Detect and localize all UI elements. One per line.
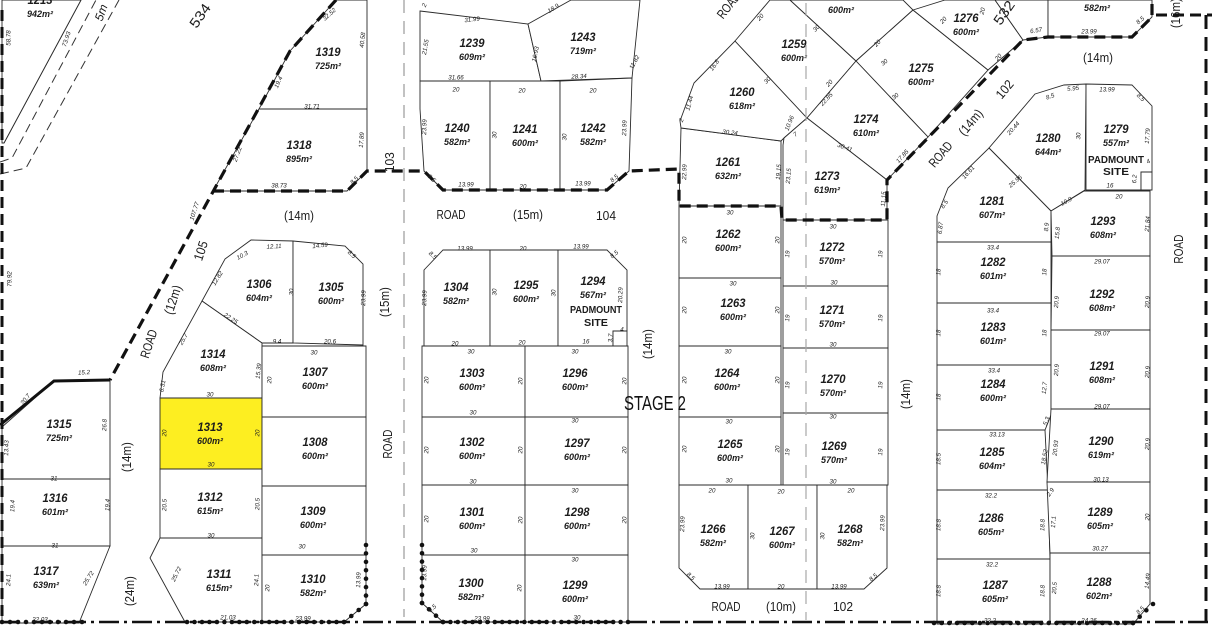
svg-text:582m²: 582m² [300, 588, 327, 598]
svg-text:615m²: 615m² [206, 583, 233, 593]
svg-text:(24m): (24m) [122, 576, 137, 606]
svg-text:20: 20 [423, 376, 430, 385]
svg-text:570m²: 570m² [821, 455, 848, 465]
svg-text:30: 30 [470, 409, 477, 416]
svg-text:30: 30 [831, 279, 838, 286]
svg-text:20.29: 20.29 [617, 287, 625, 304]
svg-text:600m²: 600m² [564, 452, 591, 462]
svg-text:32.2: 32.2 [985, 492, 998, 499]
svg-text:79.92: 79.92 [6, 271, 13, 287]
svg-text:38.73: 38.73 [271, 182, 287, 189]
svg-text:18: 18 [935, 268, 942, 276]
svg-text:1294: 1294 [581, 274, 606, 288]
svg-text:608m²: 608m² [1090, 230, 1117, 240]
svg-text:17.79: 17.79 [1144, 128, 1152, 144]
svg-text:(16m): (16m) [1168, 0, 1183, 28]
svg-text:STAGE 2: STAGE 2 [624, 393, 686, 415]
svg-text:12.7: 12.7 [1041, 381, 1049, 394]
svg-text:29.07: 29.07 [1093, 403, 1110, 410]
svg-text:600m²: 600m² [769, 540, 796, 550]
svg-text:725m²: 725m² [315, 61, 342, 71]
svg-text:1242: 1242 [581, 121, 606, 135]
svg-text:20: 20 [518, 339, 526, 346]
svg-text:18: 18 [1041, 268, 1048, 276]
svg-text:23.99: 23.99 [879, 515, 887, 532]
svg-text:600m²: 600m² [302, 381, 329, 391]
svg-text:23.99: 23.99 [679, 516, 687, 533]
svg-text:30: 30 [572, 487, 579, 494]
svg-text:20: 20 [774, 306, 781, 315]
svg-text:1303: 1303 [460, 366, 485, 380]
svg-text:30: 30 [830, 478, 837, 485]
svg-text:1299: 1299 [563, 578, 588, 592]
svg-text:1291: 1291 [1090, 359, 1115, 373]
svg-text:20.9: 20.9 [1053, 295, 1061, 309]
svg-text:600m²: 600m² [562, 594, 589, 604]
svg-text:20: 20 [621, 377, 628, 386]
svg-text:570m²: 570m² [820, 388, 847, 398]
svg-text:20.9: 20.9 [1144, 365, 1152, 379]
svg-text:13.99: 13.99 [1099, 86, 1115, 93]
svg-text:1314: 1314 [201, 347, 226, 361]
svg-text:1266: 1266 [701, 522, 726, 536]
svg-text:30: 30 [311, 349, 318, 356]
svg-text:600m²: 600m² [720, 312, 747, 322]
svg-text:20: 20 [621, 516, 628, 525]
svg-text:23.99: 23.99 [294, 615, 311, 622]
svg-text:PADMOUNT: PADMOUNT [1088, 155, 1144, 166]
svg-text:21.03: 21.03 [219, 614, 236, 621]
svg-text:1273: 1273 [815, 169, 840, 183]
svg-text:30: 30 [491, 288, 498, 295]
svg-text:13.99: 13.99 [355, 572, 363, 588]
svg-text:18.8: 18.8 [935, 518, 942, 531]
svg-text:30: 30 [470, 478, 477, 485]
svg-text:19: 19 [784, 448, 792, 456]
svg-text:23.99: 23.99 [1080, 28, 1097, 35]
svg-text:20.5: 20.5 [1051, 581, 1059, 595]
svg-text:20: 20 [517, 446, 524, 455]
svg-text:30: 30 [550, 289, 557, 296]
svg-text:20: 20 [516, 584, 523, 593]
svg-text:1267: 1267 [770, 524, 796, 538]
svg-text:20: 20 [681, 376, 688, 385]
svg-text:PADMOUNT: PADMOUNT [570, 305, 622, 316]
svg-text:1305: 1305 [319, 280, 344, 294]
svg-text:30: 30 [208, 461, 215, 468]
svg-text:1262: 1262 [716, 227, 741, 241]
svg-text:30.27: 30.27 [1092, 545, 1108, 552]
svg-text:23.15: 23.15 [785, 168, 793, 185]
svg-text:30: 30 [572, 417, 579, 424]
svg-text:1315: 1315 [47, 417, 72, 431]
svg-text:19: 19 [877, 448, 885, 456]
svg-text:725m²: 725m² [46, 433, 73, 443]
svg-text:30: 30 [574, 614, 581, 621]
svg-text:SITE: SITE [584, 318, 608, 329]
svg-text:600m²: 600m² [459, 521, 486, 531]
svg-text:ROAD: ROAD [380, 430, 395, 459]
svg-text:1311: 1311 [207, 567, 232, 581]
svg-text:600m²: 600m² [459, 451, 486, 461]
svg-text:29.07: 29.07 [1093, 258, 1110, 265]
svg-text:24.1: 24.1 [253, 574, 260, 587]
svg-text:30: 30 [561, 133, 568, 140]
svg-text:15.2: 15.2 [78, 369, 91, 377]
svg-text:20: 20 [519, 245, 527, 252]
svg-text:19: 19 [877, 314, 885, 322]
svg-text:1296: 1296 [563, 366, 588, 380]
svg-text:18: 18 [935, 393, 942, 401]
svg-text:18.5: 18.5 [935, 452, 942, 465]
svg-text:567m²: 567m² [580, 290, 607, 300]
svg-text:33.4: 33.4 [988, 367, 1001, 374]
svg-text:30: 30 [727, 209, 734, 216]
svg-text:1307: 1307 [303, 365, 329, 379]
svg-text:31: 31 [51, 475, 58, 482]
svg-text:1301: 1301 [460, 505, 485, 519]
svg-text:30: 30 [572, 556, 579, 563]
svg-text:17.1: 17.1 [1050, 516, 1058, 529]
svg-text:605m²: 605m² [978, 527, 1005, 537]
svg-text:1241: 1241 [513, 122, 538, 136]
svg-text:582m²: 582m² [700, 538, 727, 548]
svg-text:23.99: 23.99 [421, 290, 429, 307]
svg-text:1316: 1316 [43, 491, 68, 505]
svg-text:1272: 1272 [820, 240, 845, 254]
svg-text:582m²: 582m² [837, 538, 864, 548]
svg-text:20: 20 [589, 87, 597, 94]
svg-text:600m²: 600m² [318, 296, 345, 306]
svg-text:18.8: 18.8 [1039, 584, 1046, 597]
svg-text:1297: 1297 [565, 436, 591, 450]
svg-text:1302: 1302 [460, 435, 485, 449]
svg-text:600m²: 600m² [562, 382, 589, 392]
svg-text:11.15: 11.15 [880, 191, 888, 207]
svg-text:1270: 1270 [821, 372, 846, 386]
svg-text:1287: 1287 [983, 578, 1009, 592]
svg-text:33.4: 33.4 [987, 307, 1000, 314]
svg-text:601m²: 601m² [42, 507, 69, 517]
svg-text:20.9: 20.9 [1144, 295, 1152, 309]
svg-text:32.2: 32.2 [984, 617, 997, 624]
svg-text:13.43: 13.43 [3, 440, 11, 456]
svg-text:16: 16 [1107, 182, 1114, 189]
svg-text:102: 102 [833, 599, 853, 614]
svg-text:19: 19 [784, 381, 792, 389]
svg-text:30: 30 [830, 341, 837, 348]
svg-text:ROAD: ROAD [712, 599, 741, 614]
svg-text:(14m): (14m) [898, 379, 913, 409]
svg-text:618m²: 618m² [729, 101, 756, 111]
svg-text:20: 20 [519, 183, 527, 190]
svg-text:632m²: 632m² [715, 171, 742, 181]
svg-text:13.99: 13.99 [573, 243, 589, 250]
svg-text:20.5: 20.5 [254, 497, 261, 511]
svg-text:33.4: 33.4 [987, 244, 1000, 251]
svg-text:30: 30 [299, 543, 306, 550]
svg-text:610m²: 610m² [853, 128, 880, 138]
svg-text:582m²: 582m² [1084, 3, 1111, 13]
svg-text:942m²: 942m² [27, 9, 54, 19]
svg-text:(14m): (14m) [284, 208, 314, 223]
svg-text:1264: 1264 [715, 366, 740, 380]
svg-text:15.8: 15.8 [1054, 226, 1062, 239]
svg-text:19.15: 19.15 [775, 164, 783, 180]
svg-text:(14m): (14m) [640, 329, 655, 359]
svg-text:1319: 1319 [316, 45, 341, 59]
svg-text:1240: 1240 [445, 121, 470, 135]
svg-text:1265: 1265 [718, 437, 743, 451]
svg-text:600m²: 600m² [714, 382, 741, 392]
svg-text:20: 20 [451, 340, 459, 347]
svg-text:601m²: 601m² [980, 271, 1007, 281]
svg-text:1300: 1300 [459, 576, 484, 590]
svg-text:30: 30 [830, 413, 837, 420]
svg-text:13.99: 13.99 [714, 583, 730, 590]
svg-text:13.99: 13.99 [457, 245, 473, 252]
svg-text:1306: 1306 [247, 277, 272, 291]
svg-text:20: 20 [774, 236, 781, 245]
svg-text:1304: 1304 [444, 280, 469, 294]
svg-text:ROAD: ROAD [437, 207, 466, 222]
svg-text:1292: 1292 [1090, 287, 1115, 301]
svg-text:9.4: 9.4 [273, 338, 282, 345]
svg-text:1295: 1295 [514, 278, 539, 292]
svg-text:SITE: SITE [1103, 167, 1129, 178]
svg-text:600m²: 600m² [717, 453, 744, 463]
svg-text:30: 30 [819, 532, 826, 540]
svg-text:17.89: 17.89 [358, 132, 366, 148]
svg-text:20: 20 [681, 306, 688, 315]
svg-text:600m²: 600m² [564, 521, 591, 531]
svg-text:20: 20 [264, 584, 271, 593]
svg-text:1276: 1276 [954, 11, 979, 25]
svg-text:20: 20 [708, 487, 716, 494]
svg-text:30: 30 [471, 547, 478, 554]
svg-text:30: 30 [207, 391, 214, 398]
svg-text:1310: 1310 [301, 572, 326, 586]
svg-text:600m²: 600m² [300, 520, 327, 530]
svg-text:1239: 1239 [460, 36, 485, 50]
svg-text:1282: 1282 [981, 255, 1006, 269]
svg-text:557m²: 557m² [1103, 138, 1130, 148]
svg-text:20: 20 [423, 446, 430, 455]
svg-text:1213: 1213 [28, 0, 53, 7]
svg-text:1290: 1290 [1089, 434, 1114, 448]
svg-text:1298: 1298 [565, 505, 590, 519]
svg-text:20: 20 [161, 429, 168, 438]
svg-text:615m²: 615m² [197, 506, 224, 516]
svg-text:20.9: 20.9 [1144, 437, 1152, 451]
svg-text:5.95: 5.95 [1067, 85, 1080, 93]
svg-text:1261: 1261 [716, 155, 741, 169]
svg-text:607m²: 607m² [979, 210, 1006, 220]
svg-text:1243: 1243 [571, 30, 596, 44]
svg-text:20: 20 [621, 446, 628, 455]
svg-text:8.9: 8.9 [1043, 222, 1051, 232]
svg-text:30: 30 [208, 532, 215, 539]
svg-text:32.2: 32.2 [986, 561, 999, 568]
svg-text:604m²: 604m² [246, 293, 273, 303]
svg-text:18.8: 18.8 [935, 584, 942, 597]
svg-text:1284: 1284 [981, 377, 1006, 391]
svg-text:601m²: 601m² [980, 336, 1007, 346]
svg-text:ROAD: ROAD [1171, 235, 1186, 264]
svg-text:20: 20 [774, 445, 781, 454]
svg-text:600m²: 600m² [459, 382, 486, 392]
svg-text:20: 20 [777, 583, 785, 590]
svg-text:600m²: 600m² [715, 243, 742, 253]
svg-text:1283: 1283 [981, 320, 1006, 334]
svg-text:582m²: 582m² [443, 296, 470, 306]
svg-text:13.99: 13.99 [831, 583, 847, 590]
svg-text:1285: 1285 [980, 445, 1005, 459]
svg-text:(14m): (14m) [1083, 50, 1113, 65]
svg-text:30: 30 [468, 348, 475, 355]
svg-text:30: 30 [288, 288, 295, 296]
svg-text:570m²: 570m² [819, 256, 846, 266]
svg-text:24.26: 24.26 [1080, 617, 1097, 624]
svg-text:1313: 1313 [198, 420, 223, 434]
svg-text:30: 30 [830, 223, 837, 230]
svg-text:1312: 1312 [198, 490, 223, 504]
svg-text:20.9: 20.9 [1053, 363, 1061, 377]
svg-text:600m²: 600m² [302, 451, 329, 461]
svg-text:1286: 1286 [979, 511, 1004, 525]
svg-text:26.8: 26.8 [101, 418, 108, 432]
svg-text:600m²: 600m² [828, 5, 855, 15]
svg-text:1259: 1259 [782, 37, 807, 51]
svg-text:1271: 1271 [820, 303, 845, 317]
svg-text:1289: 1289 [1088, 505, 1113, 519]
svg-text:602m²: 602m² [1086, 591, 1113, 601]
svg-text:(15m): (15m) [377, 287, 392, 317]
svg-text:20: 20 [681, 445, 688, 454]
svg-text:20: 20 [452, 86, 460, 93]
svg-text:1281: 1281 [980, 194, 1005, 208]
svg-text:30: 30 [730, 280, 737, 287]
svg-text:1269: 1269 [822, 439, 847, 453]
svg-text:1288: 1288 [1087, 575, 1112, 589]
svg-text:604m²: 604m² [979, 461, 1006, 471]
svg-text:22.03: 22.03 [31, 616, 48, 623]
svg-text:58.78: 58.78 [5, 30, 12, 46]
svg-text:20: 20 [423, 515, 430, 524]
svg-text:29.07: 29.07 [1093, 330, 1110, 337]
svg-text:19.4: 19.4 [9, 499, 16, 512]
svg-text:3.7: 3.7 [607, 333, 615, 343]
svg-text:1268: 1268 [838, 522, 863, 536]
svg-text:6.2: 6.2 [1131, 174, 1139, 184]
svg-text:608m²: 608m² [1089, 375, 1116, 385]
svg-text:20: 20 [777, 488, 785, 495]
svg-text:31: 31 [52, 542, 59, 549]
svg-text:104: 104 [596, 208, 616, 223]
svg-text:582m²: 582m² [458, 592, 485, 602]
svg-text:24.1: 24.1 [5, 574, 12, 587]
svg-text:30: 30 [572, 348, 579, 355]
svg-text:1275: 1275 [909, 61, 934, 75]
svg-text:582m²: 582m² [444, 137, 471, 147]
svg-text:6.87: 6.87 [937, 221, 945, 234]
svg-text:18.8: 18.8 [1039, 518, 1046, 531]
svg-text:570m²: 570m² [819, 319, 846, 329]
svg-text:1274: 1274 [854, 112, 879, 126]
svg-text:20: 20 [517, 516, 524, 525]
svg-text:1280: 1280 [1036, 131, 1061, 145]
svg-text:12.11: 12.11 [266, 243, 281, 251]
svg-text:31.66: 31.66 [448, 74, 464, 81]
svg-text:31.71: 31.71 [304, 103, 319, 110]
svg-text:28.34: 28.34 [570, 73, 587, 81]
svg-text:619m²: 619m² [814, 185, 841, 195]
svg-text:20: 20 [254, 429, 261, 438]
svg-text:23.99: 23.99 [360, 290, 368, 307]
svg-text:30: 30 [1075, 132, 1082, 140]
svg-text:1263: 1263 [721, 296, 746, 310]
svg-text:19: 19 [784, 250, 792, 258]
svg-text:30: 30 [726, 418, 733, 425]
svg-text:20: 20 [266, 376, 273, 385]
svg-text:18: 18 [1041, 329, 1048, 337]
svg-text:20: 20 [774, 376, 781, 385]
svg-text:719m²: 719m² [570, 46, 597, 56]
svg-text:608m²: 608m² [1089, 303, 1116, 313]
svg-text:13.99: 13.99 [421, 565, 429, 581]
svg-text:20.6: 20.6 [323, 338, 337, 345]
svg-text:20: 20 [847, 487, 855, 494]
svg-text:18: 18 [935, 329, 942, 337]
svg-text:619m²: 619m² [1088, 450, 1115, 460]
svg-text:20.5: 20.5 [161, 498, 168, 512]
svg-text:20: 20 [681, 236, 688, 245]
svg-text:608m²: 608m² [200, 363, 227, 373]
svg-text:22.99: 22.99 [681, 164, 689, 181]
svg-text:20: 20 [517, 377, 524, 386]
svg-text:(14m): (14m) [119, 442, 134, 472]
svg-text:13.99: 13.99 [458, 181, 474, 188]
svg-text:20: 20 [518, 87, 526, 94]
svg-text:(10m): (10m) [766, 599, 796, 614]
svg-text:13.99: 13.99 [575, 180, 591, 187]
svg-text:1308: 1308 [303, 435, 328, 449]
svg-text:4: 4 [620, 326, 624, 333]
svg-text:605m²: 605m² [1087, 521, 1114, 531]
svg-text:1309: 1309 [301, 504, 326, 518]
svg-text:895m²: 895m² [286, 154, 313, 164]
svg-text:30: 30 [491, 131, 498, 138]
svg-text:33.13: 33.13 [989, 431, 1005, 438]
svg-text:30: 30 [726, 477, 733, 484]
svg-text:19: 19 [877, 381, 885, 389]
svg-text:21.84: 21.84 [1144, 216, 1152, 233]
svg-text:30.13: 30.13 [1093, 476, 1109, 483]
svg-text:1279: 1279 [1104, 122, 1129, 136]
svg-text:600m²: 600m² [781, 53, 808, 63]
svg-text:1317: 1317 [34, 564, 60, 578]
svg-text:600m²: 600m² [513, 294, 540, 304]
svg-text:19: 19 [877, 250, 885, 258]
svg-text:20: 20 [1144, 513, 1151, 522]
svg-text:(15m): (15m) [513, 207, 543, 222]
svg-text:600m²: 600m² [980, 393, 1007, 403]
svg-text:23.99: 23.99 [421, 119, 429, 136]
svg-text:30: 30 [725, 348, 732, 355]
svg-text:19: 19 [784, 314, 792, 322]
svg-text:644m²: 644m² [1035, 147, 1062, 157]
svg-text:609m²: 609m² [459, 52, 486, 62]
